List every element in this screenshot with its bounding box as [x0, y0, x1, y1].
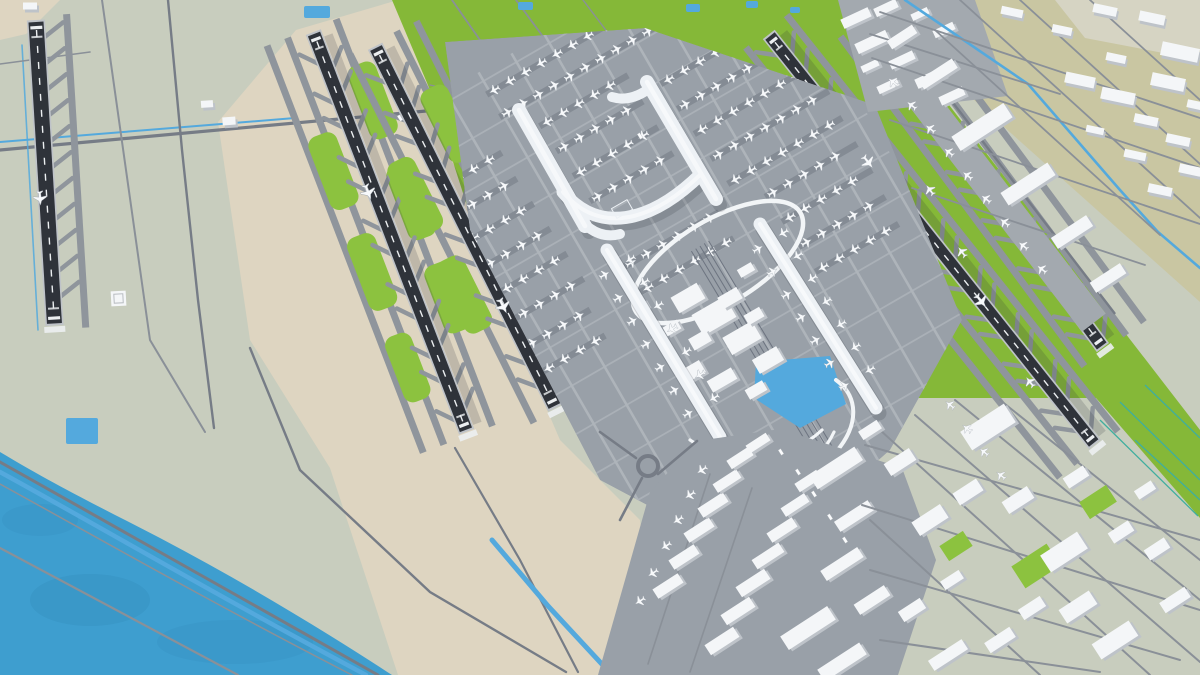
- pond: [790, 7, 800, 13]
- airport-3d-map[interactable]: [0, 0, 1200, 675]
- pond: [518, 2, 533, 10]
- pond: [304, 6, 330, 18]
- building-3d: [201, 100, 213, 108]
- helipad: [111, 291, 127, 307]
- building-3d: [23, 3, 37, 10]
- pond: [746, 1, 758, 8]
- coastal-pond: [66, 418, 98, 444]
- pond: [686, 4, 700, 12]
- airport-3d-map-viewport[interactable]: [0, 0, 1200, 675]
- building-3d: [222, 117, 236, 126]
